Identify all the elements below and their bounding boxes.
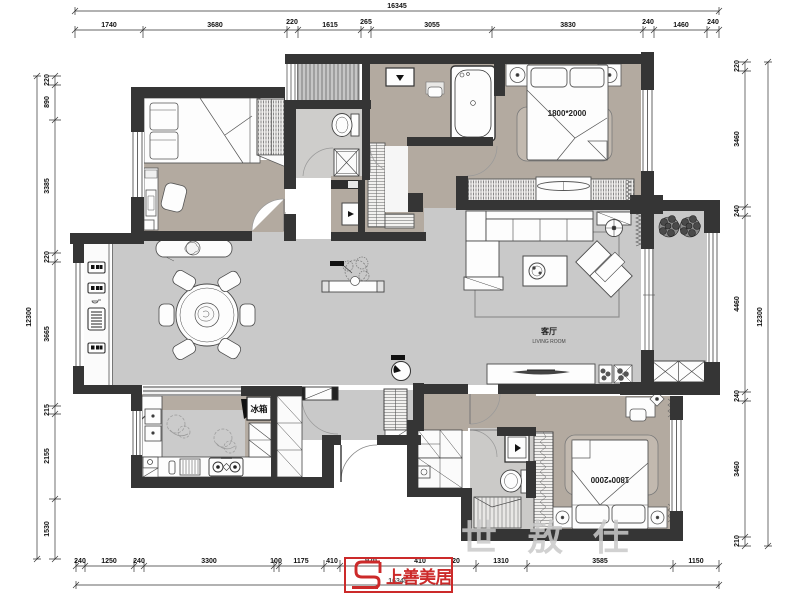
svg-text:1615: 1615 [322,22,338,29]
svg-text:240: 240 [707,19,719,26]
svg-text:220: 220 [44,74,51,86]
svg-text:220: 220 [44,251,51,263]
svg-text:3385: 3385 [44,178,51,194]
svg-text:1250: 1250 [101,558,117,565]
svg-text:20: 20 [452,558,460,565]
svg-text:1800*2000: 1800*2000 [590,475,629,484]
svg-text:1530: 1530 [44,521,51,537]
svg-text:1310: 1310 [493,558,509,565]
svg-text:LIVING ROOM: LIVING ROOM [532,339,565,345]
svg-text:冰箱: 冰箱 [250,404,268,414]
svg-text:上善美居: 上善美居 [386,567,452,587]
svg-text:890: 890 [44,96,51,108]
svg-text:240: 240 [734,390,741,402]
svg-text:210: 210 [734,535,741,547]
svg-text:220: 220 [734,60,741,72]
svg-text:3680: 3680 [207,22,223,29]
svg-text:240: 240 [734,205,741,217]
svg-text:215: 215 [44,404,51,416]
svg-text:265: 265 [360,19,372,26]
svg-text:1175: 1175 [293,558,308,565]
svg-text:12300: 12300 [26,307,33,327]
svg-text:16345: 16345 [387,3,407,10]
svg-text:1740: 1740 [101,22,117,29]
svg-text:100: 100 [270,558,282,565]
svg-text:3055: 3055 [424,22,440,29]
svg-text:1800*2000: 1800*2000 [548,109,587,118]
svg-text:3830: 3830 [560,22,576,29]
svg-text:3460: 3460 [734,131,741,147]
svg-text:12300: 12300 [757,307,764,327]
svg-text:3300: 3300 [201,558,217,565]
svg-text:3585: 3585 [592,558,608,565]
svg-text:1460: 1460 [673,22,689,29]
svg-text:1150: 1150 [688,558,703,565]
svg-text:2155: 2155 [44,448,51,464]
svg-text:客厅: 客厅 [540,326,557,336]
svg-text:世敖仕: 世敖仕 [461,517,659,558]
svg-text:240: 240 [133,558,145,565]
svg-text:3665: 3665 [44,326,51,342]
svg-text:4460: 4460 [734,296,741,312]
svg-text:240: 240 [642,19,654,26]
svg-text:410: 410 [414,558,426,565]
svg-text:410: 410 [326,558,338,565]
svg-text:220: 220 [286,19,298,26]
svg-text:3460: 3460 [734,461,741,477]
svg-text:240: 240 [74,558,86,565]
